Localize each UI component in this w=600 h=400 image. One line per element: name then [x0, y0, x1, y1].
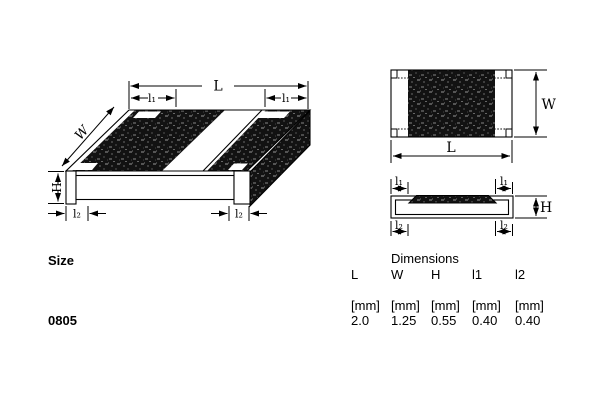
label-L-3d: L — [213, 79, 222, 95]
column-unit: [mm] — [431, 299, 460, 314]
size-value: 0805 — [48, 314, 77, 327]
column-value: 1.25 — [391, 313, 416, 328]
column-value: 0.55 — [431, 313, 456, 328]
resistor-diagram-canvas: L l₁ l₁ W — [0, 0, 600, 248]
table-column-l2: l2 [mm] 0.40 — [515, 268, 544, 327]
front-left-terminal — [66, 171, 76, 204]
column-value: 2.0 — [351, 313, 369, 328]
column-unit: [mm] — [351, 299, 380, 314]
column-unit: [mm] — [391, 299, 420, 314]
isometric-view: L l₁ l₁ W — [48, 79, 310, 222]
label-l1-right-side: l₁ — [500, 175, 508, 188]
label-W-3d: W — [72, 122, 93, 143]
label-l2-left-3d: l₂ — [73, 208, 81, 221]
label-l2-right-3d: l₂ — [235, 208, 243, 221]
label-l1-right-3d: l₁ — [282, 92, 290, 105]
label-l1-left-side: l₁ — [395, 175, 403, 188]
front-right-terminal — [234, 171, 250, 204]
dimensions-header: Dimensions — [391, 252, 459, 265]
label-W-top: W — [542, 97, 557, 113]
column-name: W — [391, 268, 420, 299]
side-view-resistive-strip — [409, 196, 496, 204]
column-name: l1 — [472, 268, 501, 299]
column-name: l2 — [515, 268, 544, 299]
label-l2-left-side: l₂ — [395, 219, 403, 232]
column-unit: [mm] — [472, 299, 501, 314]
column-name: L — [351, 268, 380, 299]
column-value: 0.40 — [515, 313, 540, 328]
top-view-dark-area — [408, 70, 495, 137]
side-view: l₁ l₁ H l₂ l₂ — [391, 175, 552, 236]
label-H-3d: H — [50, 182, 64, 192]
table-column-L: L [mm] 2.0 — [351, 268, 380, 327]
column-unit: [mm] — [515, 299, 544, 314]
label-l2-right-side: l₂ — [500, 219, 508, 232]
top-view: W L — [391, 70, 557, 163]
label-H-side: H — [540, 200, 552, 216]
table-column-l1: l1 [mm] 0.40 — [472, 268, 501, 327]
table-column-H: H [mm] 0.55 — [431, 268, 460, 327]
datasheet-figure: L l₁ l₁ W — [0, 0, 600, 400]
size-header: Size — [48, 254, 74, 267]
front-body — [76, 176, 234, 200]
label-L-top: L — [446, 140, 455, 156]
table-column-W: W [mm] 1.25 — [391, 268, 420, 327]
column-value: 0.40 — [472, 313, 497, 328]
label-l1-left-3d: l₁ — [148, 92, 156, 105]
column-name: H — [431, 268, 460, 299]
